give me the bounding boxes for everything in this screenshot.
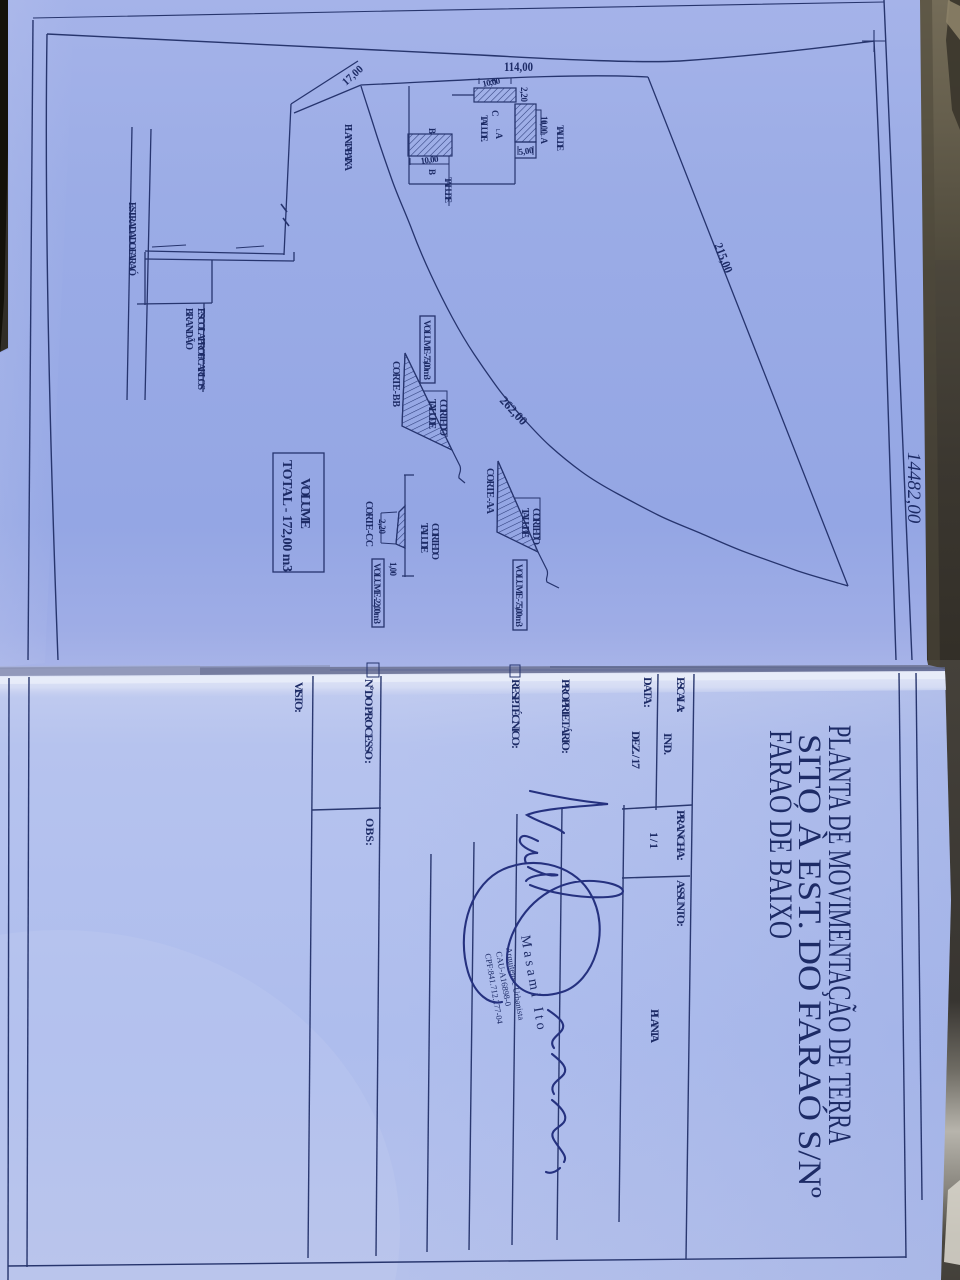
svg-text:TALUDE: TALUDE bbox=[519, 508, 530, 538]
svg-text:RESP. TÉCNICO :: RESP. TÉCNICO : bbox=[509, 679, 523, 749]
svg-text:1,00: 1,00 bbox=[388, 562, 398, 577]
svg-text:B: B bbox=[427, 128, 437, 134]
svg-text:10,00: 10,00 bbox=[539, 116, 549, 135]
svg-text:CORTE - B B: CORTE - B B bbox=[390, 361, 401, 407]
svg-text:B: B bbox=[427, 169, 437, 175]
svg-text:DEZ. / 17: DEZ. / 17 bbox=[629, 731, 643, 769]
svg-text:2,20: 2,20 bbox=[519, 87, 529, 103]
svg-text:PLANTA: PLANTA bbox=[648, 1009, 662, 1043]
svg-text:14482,00: 14482,00 bbox=[903, 452, 924, 524]
svg-text:PRANCHA :: PRANCHA : bbox=[674, 810, 688, 861]
svg-text:VOLUME -22,00 m3: VOLUME -22,00 m3 bbox=[371, 563, 381, 624]
svg-text:TALUDE: TALUDE bbox=[555, 125, 565, 151]
svg-text:CORTE - C C: CORTE - C C bbox=[363, 501, 374, 547]
svg-text:114,00: 114,00 bbox=[504, 60, 533, 74]
svg-text:VOLUME - 75,00 m3: VOLUME - 75,00 m3 bbox=[513, 564, 523, 627]
svg-text:1 / 1: 1 / 1 bbox=[647, 832, 661, 849]
svg-text:FARAÓ DE BAIXO: FARAÓ DE BAIXO bbox=[762, 730, 800, 939]
svg-text:BRANDÃO: BRANDÃO bbox=[183, 308, 195, 350]
svg-text:PLANTA BAIXA: PLANTA BAIXA bbox=[342, 124, 353, 172]
svg-text:CORTE DO: CORTE DO bbox=[429, 523, 440, 560]
svg-text:DATA :: DATA : bbox=[641, 677, 655, 708]
svg-text:TOTAL - 172,00 m3: TOTAL - 172,00 m3 bbox=[279, 460, 294, 572]
svg-text:O B S :: O B S : bbox=[363, 818, 377, 846]
svg-text:CORTE - A A: CORTE - A A bbox=[484, 468, 495, 515]
svg-text:˪A: ˪A bbox=[539, 134, 549, 145]
svg-text:Nº DO PROCESSO :: Nº DO PROCESSO : bbox=[362, 679, 376, 764]
svg-text:CORTE DO: CORTE DO bbox=[530, 508, 541, 545]
svg-text:5,00: 5,00 bbox=[518, 145, 535, 157]
svg-text:PROPRIETÁRIO :: PROPRIETÁRIO : bbox=[559, 679, 573, 754]
svg-text:2,20: 2,20 bbox=[377, 519, 387, 535]
svg-text:ASSUNTO :: ASSUNTO : bbox=[674, 880, 688, 927]
svg-text:CORTE DO: CORTE DO bbox=[437, 399, 448, 436]
svg-text:C: C bbox=[490, 110, 500, 117]
svg-text:˪A: ˪A bbox=[494, 129, 504, 140]
svg-text:TALUDE.: TALUDE. bbox=[479, 115, 489, 142]
svg-text:ESCOLA PROF. CARLOS: ESCOLA PROF. CARLOS bbox=[195, 308, 206, 390]
svg-text:VOLUME: VOLUME bbox=[297, 478, 312, 529]
svg-text:VISTO :: VISTO : bbox=[292, 682, 306, 713]
svg-text:ESCALA :: ESCALA : bbox=[674, 677, 688, 713]
svg-text:TALUDE: TALUDE bbox=[418, 523, 429, 553]
svg-text:ESTRADA DO FARAÓ: ESTRADA DO FARAÓ bbox=[126, 202, 138, 276]
svg-text:IND.: IND. bbox=[661, 733, 675, 755]
svg-text:TALUDE: TALUDE bbox=[426, 399, 437, 429]
svg-text:TALUDE: TALUDE bbox=[443, 177, 453, 203]
svg-text:VOLUME - 75,00 m3: VOLUME - 75,00 m3 bbox=[421, 320, 431, 380]
